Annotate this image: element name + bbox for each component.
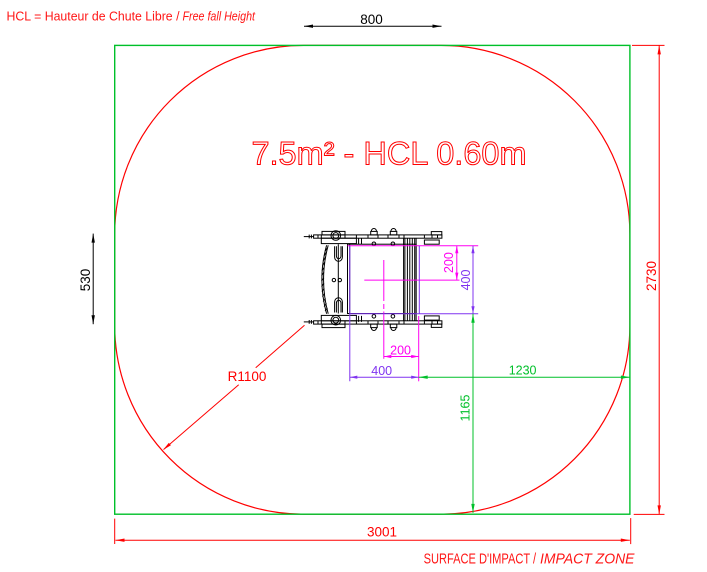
svg-text:1165: 1165	[458, 395, 472, 422]
svg-text:800: 800	[360, 12, 383, 27]
svg-text:HCL = Hauteur de Chute Libre /: HCL = Hauteur de Chute Libre /	[7, 9, 180, 24]
svg-text:200: 200	[442, 252, 456, 273]
svg-text:2730: 2730	[644, 261, 659, 291]
svg-text:400: 400	[459, 270, 473, 291]
svg-text:400: 400	[371, 364, 392, 378]
svg-text:IMPACT ZONE: IMPACT ZONE	[540, 552, 635, 568]
svg-text:200: 200	[390, 343, 411, 357]
svg-text:530: 530	[78, 269, 93, 292]
svg-text:SURFACE D'IMPACT /: SURFACE D'IMPACT /	[424, 552, 537, 568]
svg-text:1230: 1230	[509, 364, 537, 378]
svg-text:R1100: R1100	[228, 369, 267, 384]
svg-text:Free fall Height: Free fall Height	[183, 9, 257, 24]
svg-text:7.5m² - HCL 0.60m: 7.5m² - HCL 0.60m	[251, 136, 526, 172]
svg-text:3001: 3001	[367, 525, 397, 540]
